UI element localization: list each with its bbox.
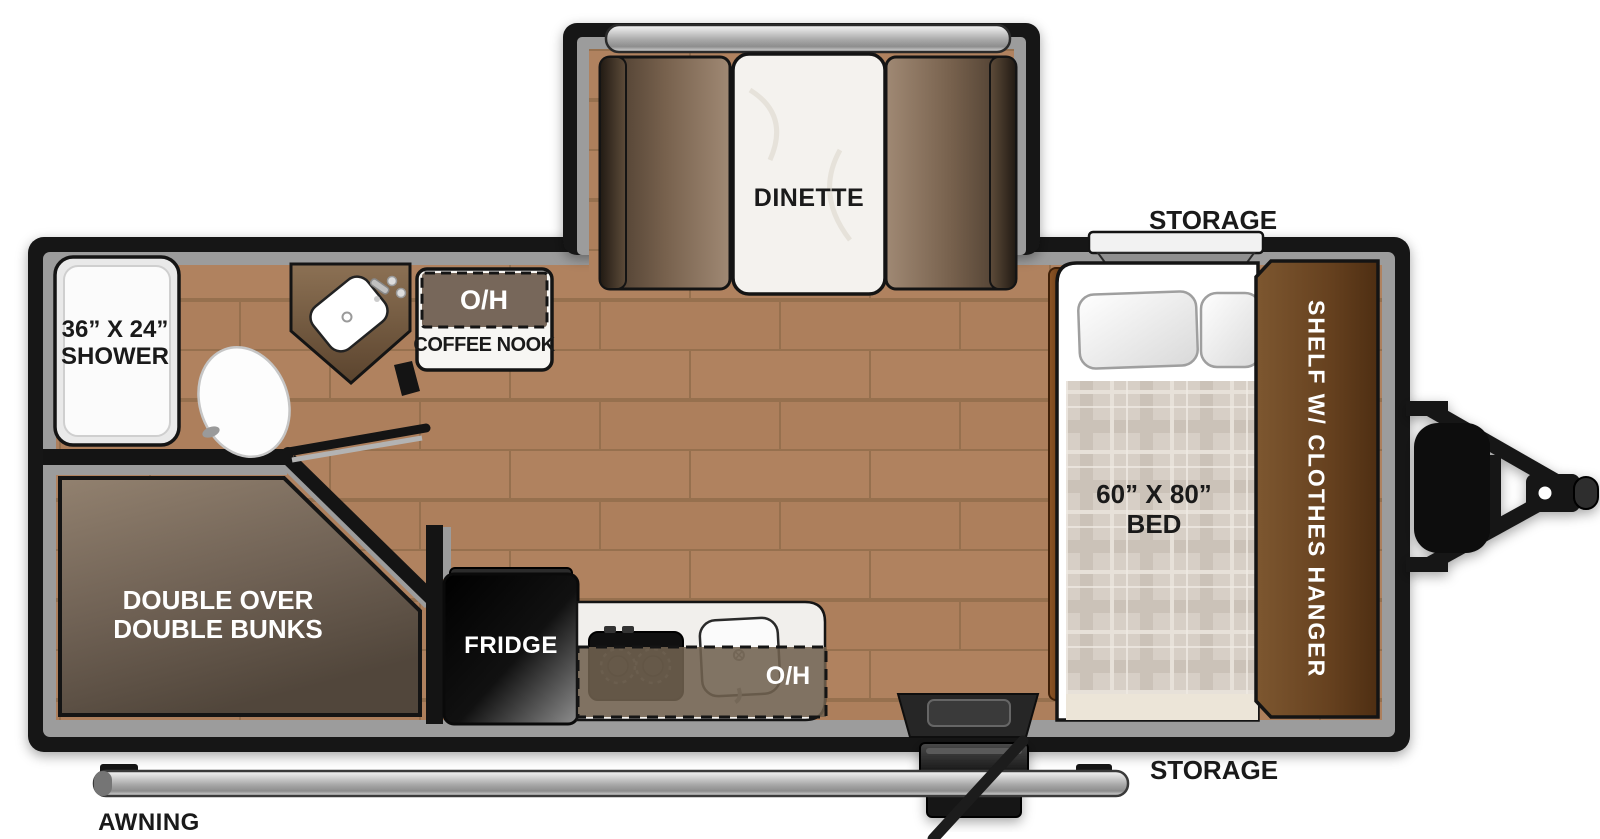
propane-tank — [1414, 423, 1490, 553]
bed-area — [1049, 263, 1261, 720]
coupler — [1526, 474, 1580, 512]
coffee-nook — [417, 269, 552, 370]
dinette-table — [733, 54, 885, 294]
dinette-slide — [563, 23, 1040, 294]
dinette-bench-left-backrest — [600, 57, 626, 289]
bed-blanket — [1066, 381, 1258, 697]
bed-pillow — [1078, 291, 1199, 369]
bed-footer — [1066, 694, 1258, 720]
bathroom-wall-trim — [50, 465, 287, 475]
awning-end-cap — [94, 771, 112, 796]
hitch-ball-icon — [1574, 477, 1598, 509]
floorplan-drawing — [0, 0, 1600, 839]
kitchen-wall — [426, 525, 443, 724]
door-hinge-icon — [282, 447, 294, 459]
dinette-bench-right-backrest — [990, 57, 1016, 289]
cooktop-knob-icon — [622, 626, 634, 633]
bed-pillow — [1201, 293, 1261, 367]
wardrobe-shelf — [1256, 261, 1378, 717]
entry-landing — [898, 694, 1038, 737]
hitch-assembly — [1406, 401, 1598, 572]
cooktop-knob-icon — [604, 626, 616, 633]
floorplan-canvas: DINETTE STORAGE STORAGE 36” X 24”SHOWER … — [0, 0, 1600, 839]
fridge — [444, 574, 578, 724]
kitchen-overhead — [578, 647, 826, 717]
slide-awning-bar — [606, 25, 1010, 52]
coffee-nook-overhead — [422, 273, 547, 327]
shower-pan — [64, 266, 170, 436]
